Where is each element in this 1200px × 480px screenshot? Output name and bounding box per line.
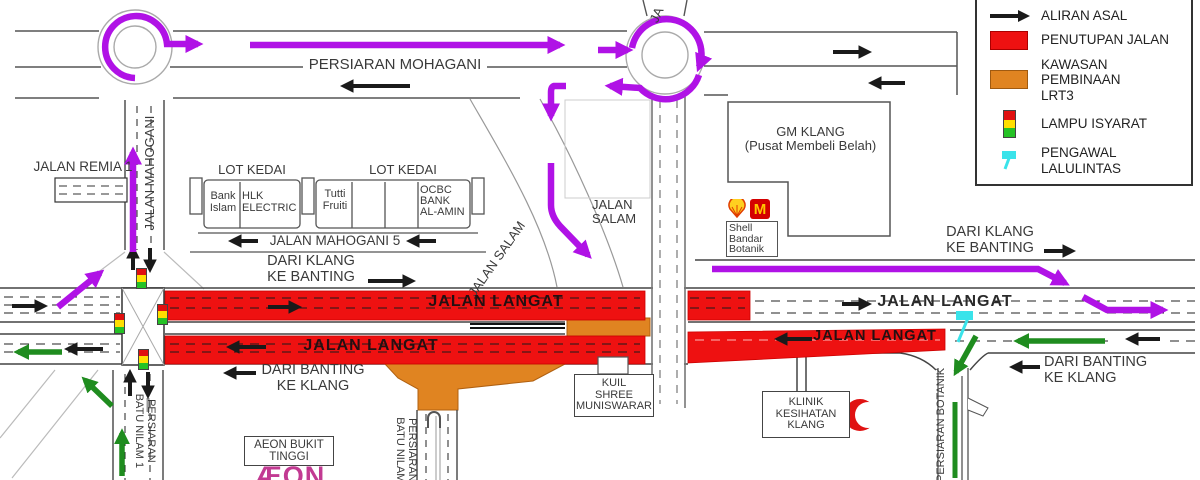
mcdonalds-icon: M (750, 199, 770, 219)
jalan-langat-label-east: JALAN LANGAT (874, 293, 1016, 310)
center-vertical-road (652, 95, 685, 408)
dari-banting-ke-klang-east-label: DARI BANTING KE KLANG (1044, 355, 1162, 386)
jalan-salam-label: JALAN SALAM (592, 198, 642, 226)
legend-label: PENGAWAL LALULINTAS (1041, 145, 1121, 176)
persiaran-batu-nilam-label: PERSIARAN BATU NILAM (393, 405, 417, 480)
legend-label: KAWASAN PEMBINAAN LRT3 (1041, 57, 1185, 104)
traffic-light-icon (114, 313, 125, 334)
shell-icon (727, 199, 747, 219)
dari-klang-ke-banting-west-label: DARI KLANG KE BANTING (260, 254, 362, 285)
shell-bandar-botanik-label: Shell Bandar Botanik (726, 221, 778, 257)
traffic-light-icon (138, 349, 149, 370)
persiaran-batu-nilam-road (417, 410, 457, 480)
kuil-shree-muniswarar-label: KUIL SHREE MUNISWARAR (574, 374, 654, 417)
kuil-driveway (598, 357, 628, 374)
top-east-road (704, 32, 957, 95)
construction-swatch (987, 70, 1031, 89)
persiaran-batu-nilam-1-label: PERSIARAN BATU NILAM 1 (132, 376, 156, 480)
salam-lot-boundary (565, 100, 650, 198)
traffic-light-icon (157, 304, 168, 325)
legend-label: ALIRAN ASAL (1041, 8, 1127, 24)
traffic-controller-flag-icon (987, 149, 1031, 173)
traffic-diversion-map: PERSIARAN MOHAGANI JALAN REMIA 1 JALAN M… (0, 0, 1200, 480)
lot-kedai-2-label: LOT KEDAI (363, 163, 443, 177)
roundabout-west (98, 10, 172, 84)
gm-klang-label: GM KLANG (Pusat Membeli Belah) (733, 125, 888, 153)
legend-item-penutupan-jalan: PENUTUPAN JALAN (987, 31, 1185, 50)
legend-item-lampu-isyarat: LAMPU ISYARAT (987, 110, 1185, 138)
persiaran-botanik-label: PERSIARAN BOTANIK (936, 364, 948, 480)
dari-banting-ke-klang-west-label: DARI BANTING KE KLANG (256, 363, 370, 394)
legend-label: LAMPU ISYARAT (1041, 116, 1147, 132)
jalan-mahogani-5-label: JALAN MAHOGANI 5 (268, 234, 402, 249)
jalan-remia-1-label: JALAN REMIA 1 (28, 160, 138, 175)
legend-label: PENUTUPAN JALAN (1041, 32, 1169, 48)
legend-item-pengawal: PENGAWAL LALULINTAS (987, 145, 1185, 176)
legend-item-kawasan-pembinaan: KAWASAN PEMBINAAN LRT3 (987, 57, 1185, 104)
aeon-logo: ÆON (246, 462, 334, 480)
road-closure-swatch (987, 31, 1031, 50)
jalan-langat-label-closed-west: JALAN LANGAT (300, 337, 442, 354)
jalan-mahogani-label: JALAN MAHOGANI (143, 108, 157, 238)
legend-item-aliran-asal: ALIRAN ASAL (987, 8, 1185, 24)
legend: ALIRAN ASAL PENUTUPAN JALAN KAWASAN PEMB… (975, 0, 1193, 186)
shop-tutti-fruiti: Tutti Fruiti (318, 189, 352, 213)
shop-ocbc-bank: OCBC BANK AL-AMIN (420, 185, 470, 218)
u-turn-lane-marking (428, 412, 440, 428)
traffic-light-icon (136, 268, 147, 289)
klinik-kesihatan-klang-label: KLINIK KESIHATAN KLANG (762, 391, 850, 438)
black-arrow-icon (987, 10, 1031, 22)
lot-kedai-1-label: LOT KEDAI (212, 163, 292, 177)
jalan-langat-label-closed-right: JALAN LANGAT (810, 329, 940, 345)
jalan-remia-road (55, 178, 127, 202)
median-barrier (470, 324, 565, 328)
jalan-langat-label-closed-east: JALAN LANGAT (425, 293, 567, 310)
shop-bank-islam: Bank Islam (206, 191, 240, 215)
shop-hlk-electric: HLK ELECTRIC (242, 191, 300, 215)
dari-klang-ke-banting-east-label: DARI KLANG KE BANTING (938, 225, 1042, 256)
persiaran-mohagani-label: PERSIARAN MOHAGANI (303, 57, 487, 73)
traffic-light-icon (987, 110, 1031, 138)
traffic-controller-flag (956, 311, 973, 342)
